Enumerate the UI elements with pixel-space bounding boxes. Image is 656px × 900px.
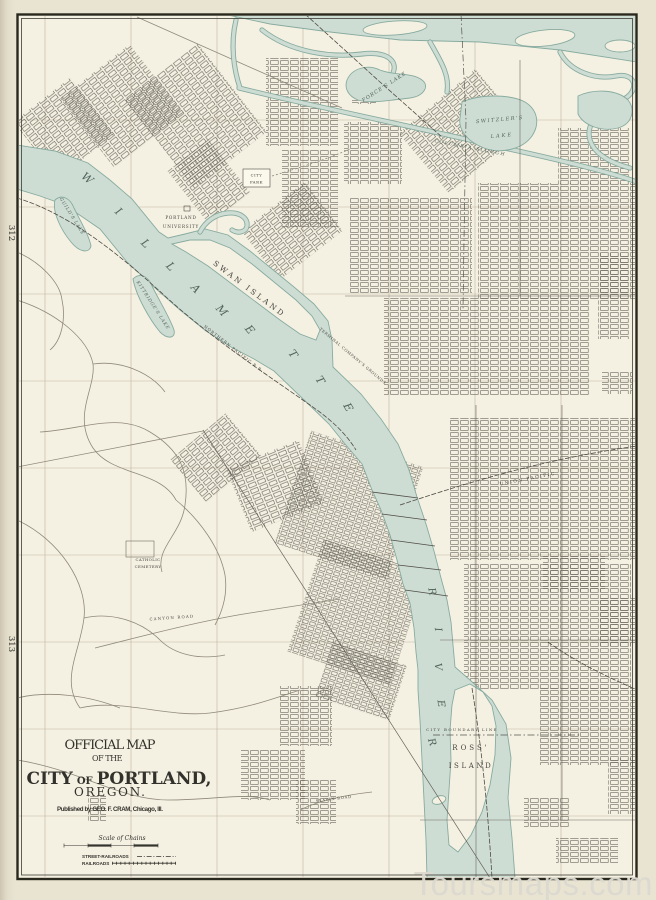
grid-patch — [602, 372, 632, 394]
scale-label: Scale of Chains — [98, 835, 145, 842]
grid-patch — [280, 686, 332, 746]
grid-patch — [344, 122, 402, 184]
grid-patch — [241, 750, 305, 800]
page-number-312: 312 — [6, 225, 16, 241]
title-line-4: OREGON. — [74, 785, 148, 799]
catholic-cemetery-label-2: CEMETERY — [135, 564, 162, 569]
title-line-1: OFFICIAL MAP — [65, 738, 158, 753]
grid-patch — [524, 798, 570, 828]
columbia-island — [605, 40, 635, 52]
city-park-label-2: PARK — [250, 180, 263, 185]
portland-university-label-2: UNIVERSITY — [163, 224, 199, 229]
pond — [578, 91, 632, 129]
map-image: WILLAMETTE RIVER FORCE'S LAKE SWITZLER'S… — [0, 0, 656, 900]
ross-island-label-1: ROSS' — [452, 744, 489, 752]
watermark: Toursmaps.com — [414, 865, 653, 900]
grid-patch — [450, 418, 637, 560]
grid-patch — [384, 298, 590, 395]
title-city: CITY — [27, 769, 74, 789]
city-boundary-line-label: CITY BOUNDARY LINE — [426, 727, 498, 732]
grid-patch — [543, 556, 605, 592]
page-number-313: 313 — [6, 636, 16, 652]
grid-patch — [350, 198, 472, 294]
ross-island-label-2: ISLAND — [449, 762, 494, 770]
grid-patch — [556, 838, 618, 864]
catholic-cemetery-label-1: CATHOLIC — [135, 557, 160, 562]
grid-patch — [282, 150, 338, 228]
publisher-line: Published by GEO. F. CRAM, Chicago, Ill. — [57, 806, 163, 813]
city-park-label-1: CITY — [251, 173, 263, 178]
legend-street-railroads-label: STREET-RAILROADS — [82, 854, 129, 859]
grid-patch — [608, 758, 636, 814]
portland-university-label-1: PORTLAND — [165, 215, 196, 220]
grid-patch — [598, 598, 636, 646]
title-line-2: OF THE — [92, 754, 124, 763]
legend-railroads-label: RAILROADS — [82, 861, 109, 866]
scanned-map-page: WILLAMETTE RIVER FORCE'S LAKE SWITZLER'S… — [0, 0, 656, 900]
grid-patch — [540, 688, 637, 765]
